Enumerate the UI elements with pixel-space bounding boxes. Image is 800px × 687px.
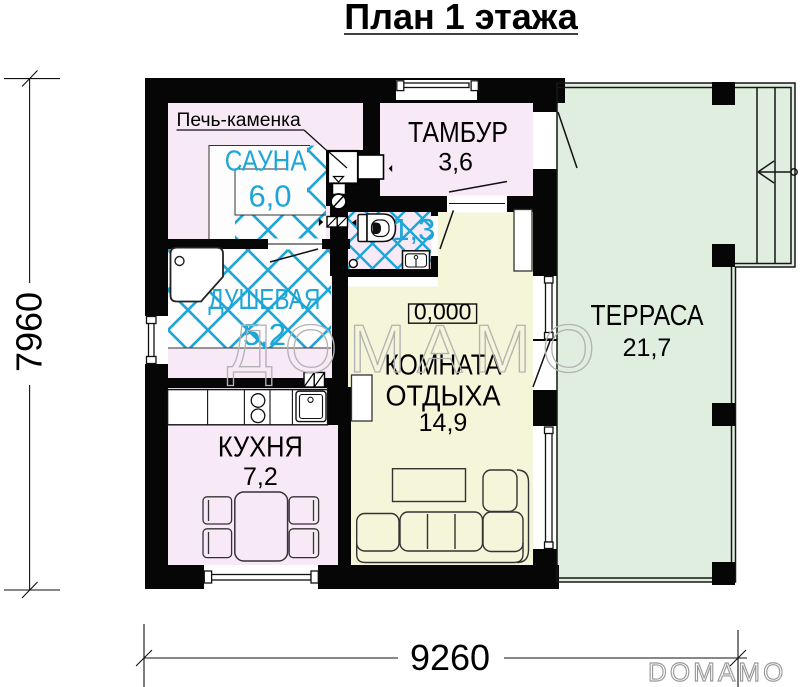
svg-text:6,0: 6,0 bbox=[248, 179, 291, 214]
svg-text:21,7: 21,7 bbox=[623, 334, 672, 362]
svg-text:САУНА: САУНА bbox=[225, 146, 308, 178]
svg-text:План 1 этажа: План 1 этажа bbox=[344, 0, 579, 37]
svg-text:Печь-каменка: Печь-каменка bbox=[177, 110, 302, 131]
svg-text:DOMAMO: DOMAMO bbox=[648, 657, 786, 687]
svg-text:3,6: 3,6 bbox=[438, 149, 473, 177]
svg-text:9260: 9260 bbox=[410, 637, 490, 678]
svg-text:7960: 7960 bbox=[9, 292, 50, 372]
svg-text:7,2: 7,2 bbox=[243, 463, 278, 491]
svg-text:1,3: 1,3 bbox=[392, 212, 435, 247]
svg-text:14,9: 14,9 bbox=[419, 409, 468, 437]
svg-text:ТАМБУР: ТАМБУР bbox=[408, 117, 508, 149]
svg-text:ТЕРРАСА: ТЕРРАСА bbox=[591, 300, 705, 332]
svg-text:ДОМАМО: ДОМАМО bbox=[227, 311, 606, 387]
svg-text:КУХНЯ: КУХНЯ bbox=[218, 432, 303, 464]
